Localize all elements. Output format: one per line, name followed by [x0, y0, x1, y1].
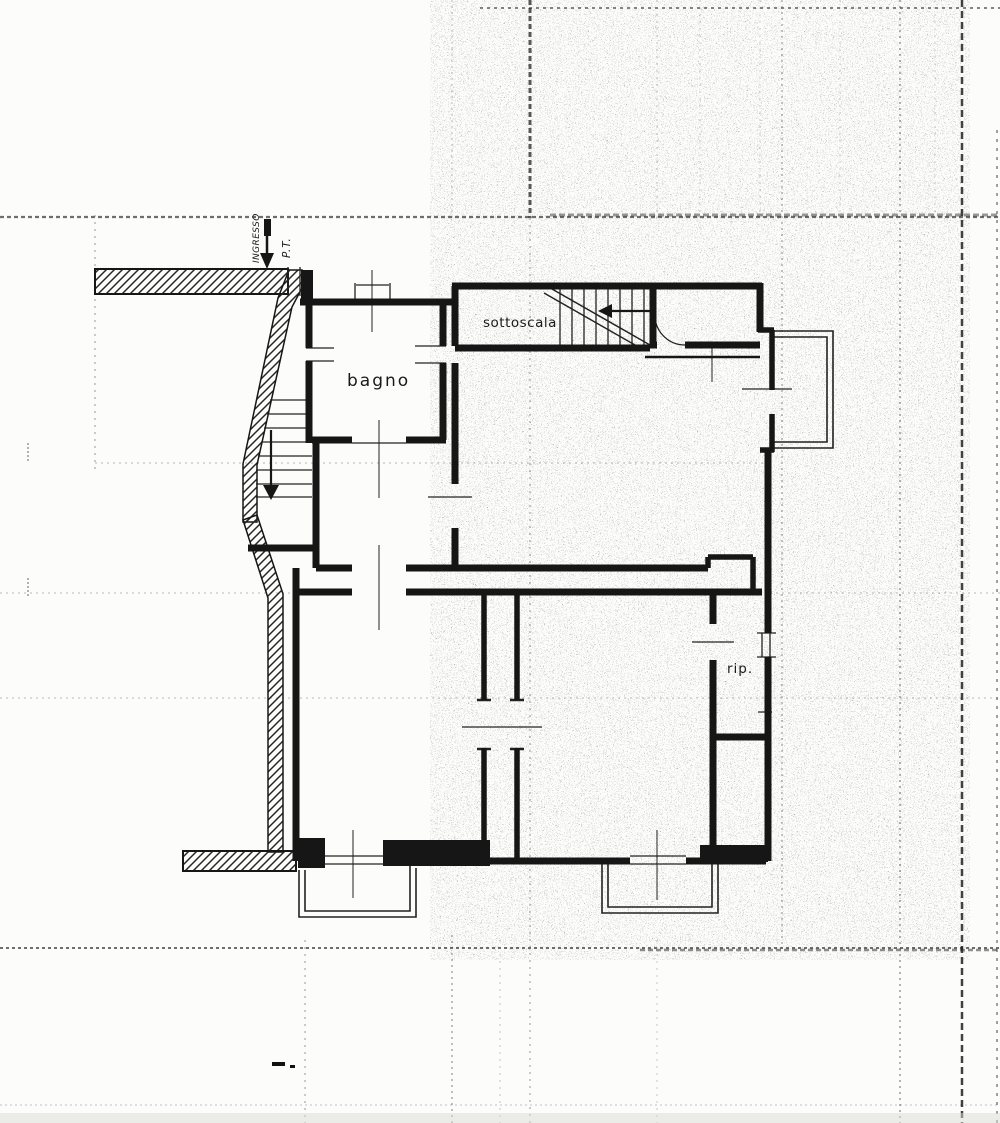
hatched-wall-bottom-strip [183, 851, 296, 871]
label-sottoscala: sottoscala [483, 315, 557, 331]
wall-block-bottom-mid [383, 840, 490, 866]
label-ingresso: INGRESSO [252, 213, 262, 263]
label-bagno: bagno [347, 371, 410, 391]
floor-plan-drawing: bagno sottoscala rip. INGRESSO P.T. [0, 0, 1000, 1123]
scanned-floor-plan-page: bagno sottoscala rip. INGRESSO P.T. [0, 0, 1000, 1123]
label-floor-level: P.T. [281, 237, 293, 258]
label-rip: rip. [727, 661, 753, 677]
wall-block-entrance-corner [301, 270, 313, 304]
wall-block-bottom-right [700, 845, 768, 862]
scan-noise-dense [430, 0, 970, 960]
hatched-wall-top-strip [95, 269, 288, 294]
wall-block-bottom-left [298, 838, 325, 868]
